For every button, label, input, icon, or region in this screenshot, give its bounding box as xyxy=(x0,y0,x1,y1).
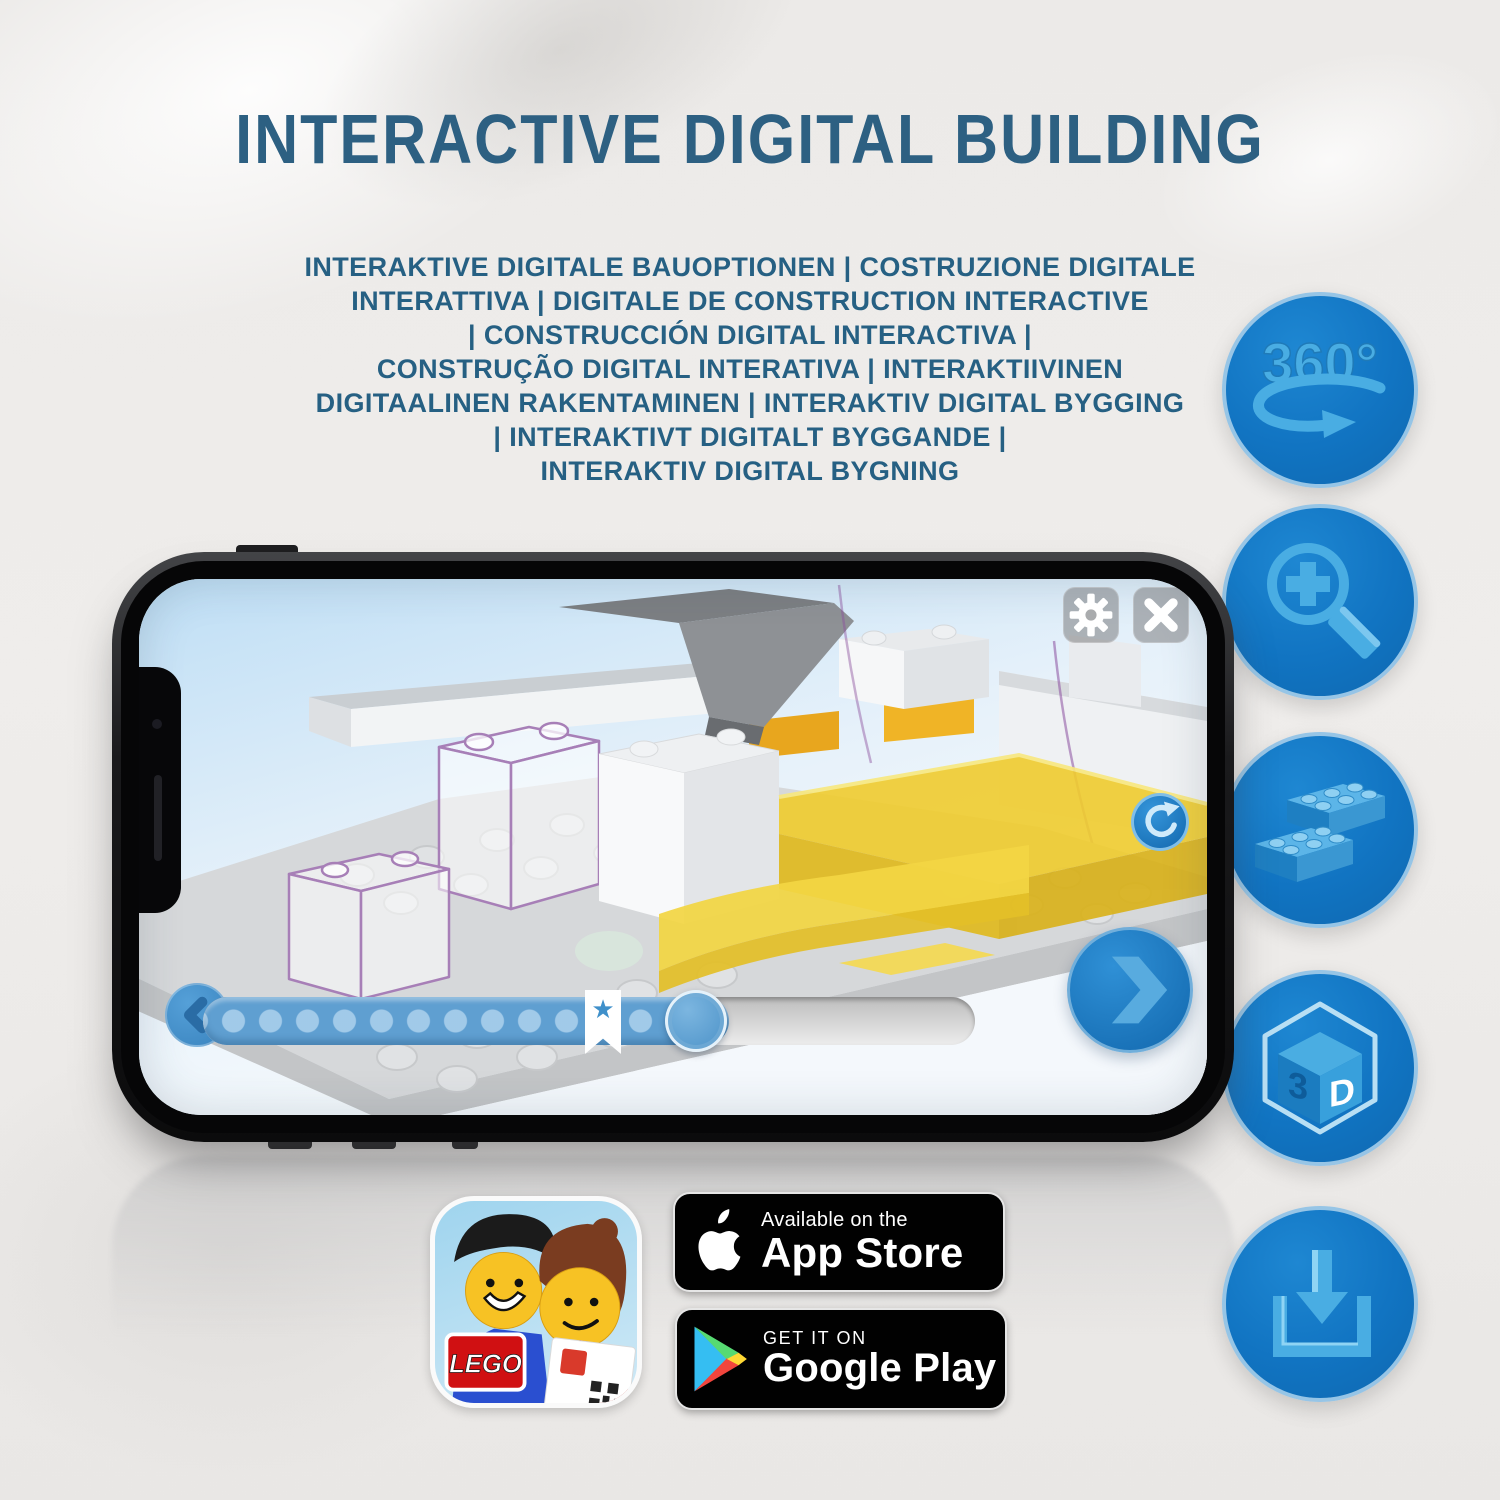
chevron-right-icon xyxy=(1070,930,1190,1050)
progress-fill xyxy=(203,997,729,1045)
app-store-tagline: Available on the xyxy=(761,1210,963,1231)
camera-dot xyxy=(152,719,162,729)
close-icon xyxy=(1135,589,1187,641)
zoom-in-icon xyxy=(1250,532,1390,672)
build-progress-slider[interactable]: ★ xyxy=(203,997,975,1045)
feature-3d-view: 3 D xyxy=(1222,970,1418,1166)
subtitle-line: INTERAKTIVE DIGITALE BAUOPTIONEN | COSTR… xyxy=(0,250,1500,284)
phone-notch xyxy=(139,667,181,913)
next-step-button[interactable] xyxy=(1067,927,1193,1053)
360-rotation-icon: 360° xyxy=(1232,322,1408,458)
google-play-tagline: GET IT ON xyxy=(763,1329,996,1348)
speaker-slit xyxy=(154,775,162,861)
google-play-icon xyxy=(677,1324,763,1394)
lego-app-icon[interactable]: LEGO xyxy=(430,1196,642,1408)
download-icon xyxy=(1250,1238,1390,1370)
feature-zoom xyxy=(1222,504,1418,700)
close-button[interactable] xyxy=(1133,587,1189,643)
feature-download xyxy=(1222,1206,1418,1402)
feature-bricks xyxy=(1222,732,1418,928)
3d-cube-icon: 3 D xyxy=(1250,998,1390,1138)
app-store-badge[interactable]: Available on the App Store xyxy=(673,1192,1005,1292)
svg-text:LEGO: LEGO xyxy=(449,1351,522,1379)
page-title: INTERACTIVE DIGITAL BUILDING xyxy=(0,99,1500,179)
google-play-name: Google Play xyxy=(763,1348,996,1390)
phone-mockup: ★ xyxy=(112,552,1234,1142)
apple-icon xyxy=(675,1208,761,1276)
slider-thumb[interactable] xyxy=(665,990,727,1052)
gear-icon xyxy=(1065,589,1117,641)
lego-minifigures-art: LEGO xyxy=(435,1201,637,1403)
google-play-badge[interactable]: GET IT ON Google Play xyxy=(675,1308,1007,1410)
svg-text:D: D xyxy=(1329,1069,1355,1115)
feature-360-rotation: 360° xyxy=(1222,292,1418,488)
phone-reflection xyxy=(112,1156,1234,1406)
svg-text:3: 3 xyxy=(1288,1063,1308,1108)
lego-bricks-icon xyxy=(1235,750,1405,910)
app-store-name: App Store xyxy=(761,1231,963,1275)
rotate-icon xyxy=(1138,800,1182,844)
settings-button[interactable] xyxy=(1063,587,1119,643)
page: { "header": { "title": "INTERACTIVE DIGI… xyxy=(0,0,1500,1500)
phone-screen: ★ xyxy=(139,579,1207,1115)
rotate-view-button[interactable] xyxy=(1131,793,1189,851)
